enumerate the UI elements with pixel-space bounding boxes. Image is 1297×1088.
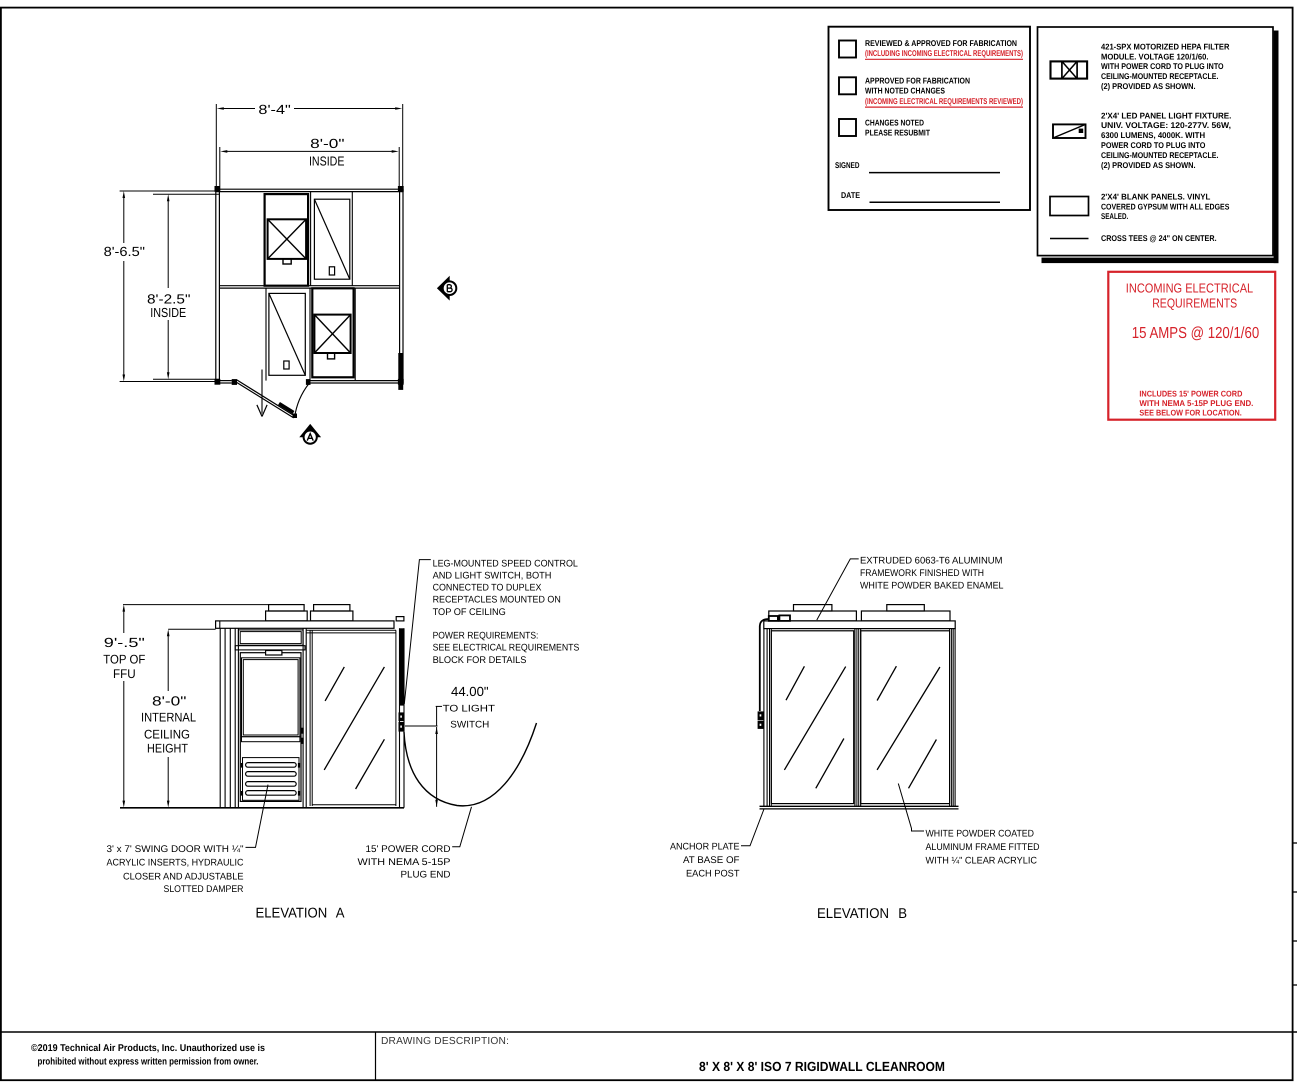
svg-text:(INCOMING ELECTRICAL REQUIREME: (INCOMING ELECTRICAL REQUIREMENTS REVIEW… (865, 96, 1023, 106)
svg-text:8'-0": 8'-0" (310, 136, 345, 151)
svg-text:SLOTTED DAMPER: SLOTTED DAMPER (164, 884, 244, 895)
svg-text:WITH POWER CORD TO PLUG INTO: WITH POWER CORD TO PLUG INTO (1101, 61, 1224, 71)
svg-text:WITH ¼" CLEAR ACRYLIC: WITH ¼" CLEAR ACRYLIC (926, 855, 1038, 866)
svg-text:ALUMINUM FRAME FITTED: ALUMINUM FRAME FITTED (926, 842, 1040, 853)
svg-text:2'X4' LED PANEL LIGHT FIXTURE.: 2'X4' LED PANEL LIGHT FIXTURE. (1101, 110, 1231, 120)
svg-text:8'-0": 8'-0" (152, 694, 187, 709)
svg-text:INCLUDES 15' POWER CORD: INCLUDES 15' POWER CORD (1139, 388, 1242, 398)
svg-text:15' POWER CORD: 15' POWER CORD (366, 844, 451, 855)
svg-text:INSIDE: INSIDE (150, 305, 186, 320)
svg-text:BLOCK FOR DETAILS: BLOCK FOR DETAILS (433, 655, 527, 666)
svg-text:SEE BELOW FOR LOCATION.: SEE BELOW FOR LOCATION. (1139, 408, 1241, 418)
svg-text:CONNECTED TO DUPLEX: CONNECTED TO DUPLEX (433, 583, 542, 594)
svg-text:SEALED.: SEALED. (1101, 211, 1128, 221)
svg-text:FRAMEWORK FINISHED WITH: FRAMEWORK FINISHED WITH (860, 568, 984, 579)
svg-text:INCOMING ELECTRICAL: INCOMING ELECTRICAL (1126, 280, 1253, 295)
svg-text:ELEVATION A: ELEVATION A (256, 906, 345, 922)
svg-text:AND LIGHT SWITCH, BOTH: AND LIGHT SWITCH, BOTH (433, 571, 552, 582)
svg-text:PLEASE RESUBMIT: PLEASE RESUBMIT (865, 127, 931, 137)
svg-text:6300 LUMENS, 4000K. WITH: 6300 LUMENS, 4000K. WITH (1101, 130, 1205, 140)
svg-text:UNIV. VOLTAGE: 120-277V. 56W,: UNIV. VOLTAGE: 120-277V. 56W, (1101, 120, 1231, 130)
svg-text:DATE: DATE (841, 190, 860, 200)
svg-text:FFU: FFU (113, 667, 136, 681)
svg-text:SIGNED: SIGNED (835, 160, 860, 170)
svg-text:LEG-MOUNTED SPEED CONTROL: LEG-MOUNTED SPEED CONTROL (433, 558, 579, 569)
svg-text:44.00": 44.00" (451, 684, 489, 699)
svg-text:421-SPX MOTORIZED HEPA FILTER: 421-SPX MOTORIZED HEPA FILTER (1101, 41, 1230, 51)
svg-text:ANCHOR PLATE: ANCHOR PLATE (670, 842, 740, 853)
svg-text:POWER CORD TO PLUG INTO: POWER CORD TO PLUG INTO (1101, 140, 1206, 150)
svg-text:prohibited without express wri: prohibited without express written permi… (38, 1057, 259, 1068)
svg-text:SEE ELECTRICAL REQUIREMENTS: SEE ELECTRICAL REQUIREMENTS (433, 643, 580, 654)
svg-text:©2019 Technical Air Products,: ©2019 Technical Air Products, Inc. Unaut… (31, 1043, 265, 1054)
svg-text:CHANGES NOTED: CHANGES NOTED (865, 117, 924, 127)
svg-text:INSIDE: INSIDE (309, 154, 345, 169)
svg-text:WITH NOTED CHANGES: WITH NOTED CHANGES (865, 86, 945, 96)
svg-text:8'-6.5": 8'-6.5" (104, 244, 146, 259)
svg-text:2'X4' BLANK PANELS. VINYL: 2'X4' BLANK PANELS. VINYL (1101, 191, 1210, 201)
svg-text:DRAWING DESCRIPTION:: DRAWING DESCRIPTION: (381, 1036, 509, 1047)
svg-text:HEIGHT: HEIGHT (147, 742, 188, 756)
svg-text:(INCLUDING INCOMING ELECTRICAL: (INCLUDING INCOMING ELECTRICAL REQUIREME… (865, 48, 1023, 58)
svg-text:8' X 8' X 8' ISO 7 RIGIDWALL C: 8' X 8' X 8' ISO 7 RIGIDWALL CLEANROOM (699, 1059, 945, 1074)
svg-text:WITH NEMA 5-15P: WITH NEMA 5-15P (358, 857, 451, 868)
svg-text:REVIEWED & APPROVED FOR FABRIC: REVIEWED & APPROVED FOR FABRICATION (865, 38, 1017, 48)
svg-text:CROSS TEES @ 24" ON CENTER.: CROSS TEES @ 24" ON CENTER. (1101, 233, 1217, 243)
svg-text:POWER REQUIREMENTS:: POWER REQUIREMENTS: (433, 631, 539, 642)
svg-text:TOP OF CEILING: TOP OF CEILING (433, 607, 506, 618)
svg-text:AT BASE OF: AT BASE OF (683, 855, 740, 866)
svg-text:CEILING: CEILING (144, 728, 190, 742)
svg-text:8'-4": 8'-4" (258, 102, 291, 117)
svg-text:TO LIGHT: TO LIGHT (443, 704, 495, 715)
svg-text:WHITE POWDER BAKED ENAMEL: WHITE POWDER BAKED ENAMEL (860, 580, 1004, 591)
svg-text:ELEVATION B: ELEVATION B (817, 906, 907, 922)
svg-text:EACH POST: EACH POST (686, 869, 740, 880)
svg-text:EXTRUDED 6063-T6 ALUMINUM: EXTRUDED 6063-T6 ALUMINUM (860, 556, 1003, 567)
svg-text:WITH NEMA 5-15P PLUG END.: WITH NEMA 5-15P PLUG END. (1139, 398, 1253, 408)
svg-text:INTERNAL: INTERNAL (141, 711, 196, 725)
svg-text:TOP OF: TOP OF (103, 653, 145, 667)
svg-text:MODULE. VOLTAGE 120/1/60.: MODULE. VOLTAGE 120/1/60. (1101, 51, 1209, 61)
svg-text:WHITE POWDER COATED: WHITE POWDER COATED (926, 829, 1035, 840)
svg-text:REQUIREMENTS: REQUIREMENTS (1152, 296, 1237, 311)
svg-text:APPROVED FOR FABRICATION: APPROVED FOR FABRICATION (865, 76, 970, 86)
svg-text:15 AMPS @ 120/1/60: 15 AMPS @ 120/1/60 (1132, 325, 1259, 342)
svg-text:CEILING-MOUNTED RECEPTACLE.: CEILING-MOUNTED RECEPTACLE. (1101, 150, 1218, 160)
svg-text:PLUG END: PLUG END (401, 870, 451, 881)
svg-text:RECEPTACLES MOUNTED ON: RECEPTACLES MOUNTED ON (433, 595, 561, 606)
svg-text:ACRYLIC INSERTS, HYDRAULIC: ACRYLIC INSERTS, HYDRAULIC (107, 857, 244, 868)
svg-text:3' x 7' SWING DOOR WITH ¼": 3' x 7' SWING DOOR WITH ¼" (107, 844, 245, 855)
svg-text:SWITCH: SWITCH (450, 720, 489, 731)
svg-text:(2) PROVIDED AS SHOWN.: (2) PROVIDED AS SHOWN. (1101, 81, 1196, 91)
svg-text:(2) PROVIDED AS SHOWN.: (2) PROVIDED AS SHOWN. (1101, 160, 1196, 170)
svg-text:9'-.5": 9'-.5" (104, 635, 145, 650)
svg-text:CLOSER AND ADJUSTABLE: CLOSER AND ADJUSTABLE (123, 871, 244, 882)
svg-text:COVERED GYPSUM WITH ALL EDGES: COVERED GYPSUM WITH ALL EDGES (1101, 201, 1230, 211)
svg-text:CEILING-MOUNTED RECEPTACLE.: CEILING-MOUNTED RECEPTACLE. (1101, 71, 1218, 81)
